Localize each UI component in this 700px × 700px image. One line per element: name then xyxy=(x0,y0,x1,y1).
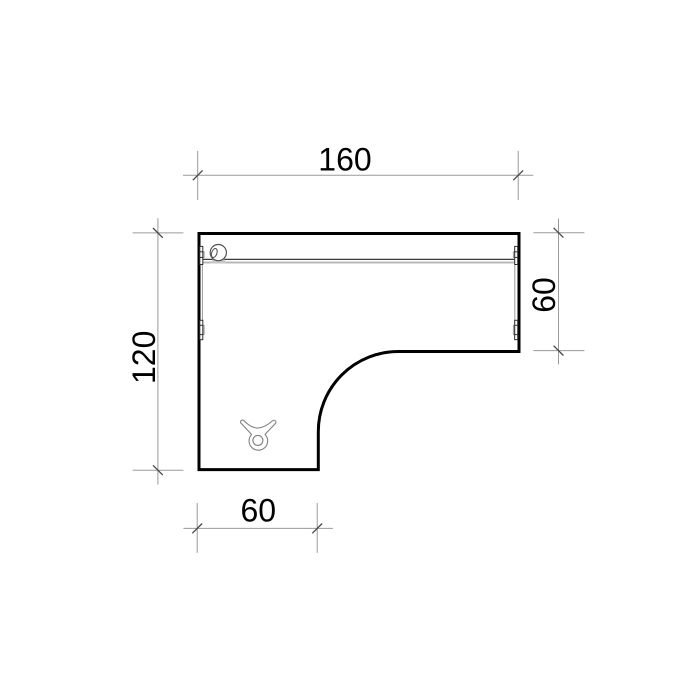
svg-text:60: 60 xyxy=(241,493,277,529)
svg-text:60: 60 xyxy=(526,277,562,313)
svg-text:160: 160 xyxy=(318,142,371,178)
svg-text:120: 120 xyxy=(126,331,162,384)
